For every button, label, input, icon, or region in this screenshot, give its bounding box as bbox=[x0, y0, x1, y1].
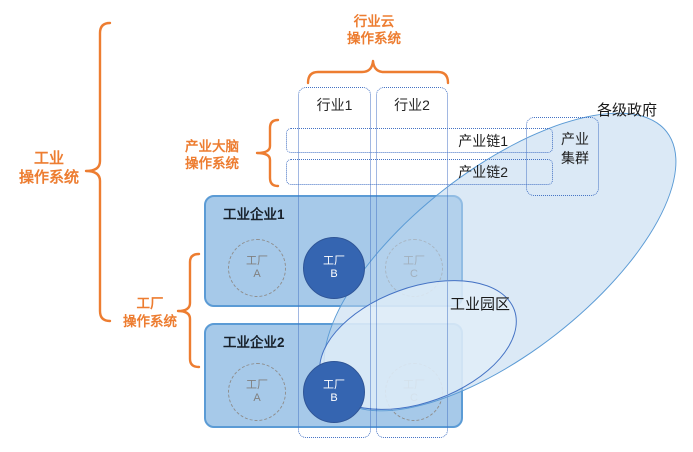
industry-brain-os-line2: 操作系统 bbox=[156, 155, 268, 172]
industry-brain-os-label: 产业大脑 操作系统 bbox=[156, 138, 268, 172]
industry-brain-os-line1: 产业大脑 bbox=[156, 138, 268, 155]
factory-label: 工厂 bbox=[246, 255, 268, 268]
industry-chain-2-label: 产业链2 bbox=[458, 162, 508, 182]
industry-cluster-line1: 产业 bbox=[555, 130, 595, 149]
enterprise-2-title: 工业企业2 bbox=[223, 331, 285, 351]
factory-label: 工厂 bbox=[246, 379, 268, 392]
industry-column-2-label: 行业2 bbox=[377, 95, 447, 115]
industrial-park-label: 工业园区 bbox=[450, 293, 510, 314]
industry-chain-row-1: 产业链1 bbox=[286, 128, 553, 153]
factory-id: A bbox=[253, 392, 260, 405]
industry-cluster-label: 产业 集群 bbox=[555, 130, 595, 168]
industry-cloud-os-line2: 操作系统 bbox=[314, 30, 434, 47]
enterprise-1-title: 工业企业1 bbox=[223, 203, 285, 223]
industry-os-line1: 工业 bbox=[6, 149, 92, 168]
industry-cloud-os-label: 行业云 操作系统 bbox=[314, 13, 434, 47]
industry-cluster-line2: 集群 bbox=[555, 149, 595, 168]
industry-cluster-box: 产业 集群 bbox=[526, 117, 599, 196]
factory-a-enterprise-2: 工厂 A bbox=[228, 363, 286, 421]
factory-a-enterprise-1: 工厂 A bbox=[228, 239, 286, 297]
factory-os-line1: 工厂 bbox=[104, 295, 196, 313]
industry-os-line2: 操作系统 bbox=[6, 168, 92, 187]
diagram-canvas: 工业企业1 工业企业2 工厂 A 工厂 B 工厂 C 工厂 A 工厂 C 工厂 … bbox=[0, 0, 693, 452]
factory-os-line2: 操作系统 bbox=[104, 313, 196, 331]
government-label: 各级政府 bbox=[597, 99, 657, 120]
industry-cloud-os-line1: 行业云 bbox=[314, 13, 434, 30]
factory-id: A bbox=[253, 268, 260, 281]
industry-os-label: 工业 操作系统 bbox=[6, 149, 92, 187]
industry-column-1-label: 行业1 bbox=[299, 95, 370, 115]
factory-os-label: 工厂 操作系统 bbox=[104, 295, 196, 331]
brace-industry-cloud-os bbox=[308, 61, 448, 83]
industry-chain-row-2: 产业链2 bbox=[286, 159, 553, 185]
industry-chain-1-label: 产业链1 bbox=[458, 131, 508, 151]
